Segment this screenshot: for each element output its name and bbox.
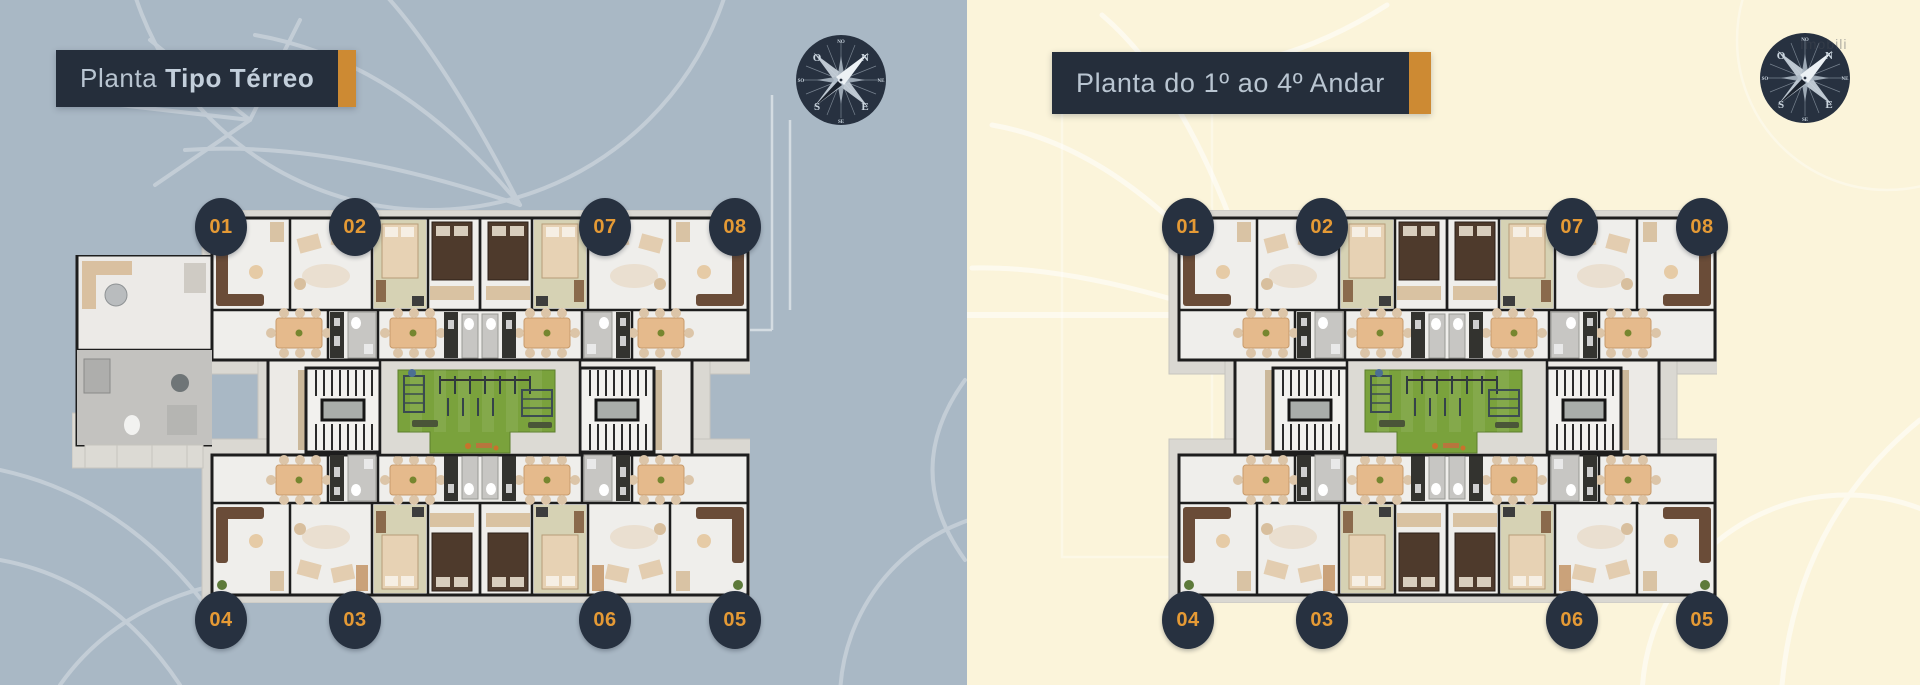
- unit-badge-02: 02: [329, 198, 381, 256]
- title-accent-bar: [338, 50, 356, 107]
- floor-plan-terreo: 01 02 07 08 04 03 06 05: [60, 210, 750, 603]
- compass-o: O: [1777, 50, 1786, 62]
- unit-badge-07: 07: [579, 198, 631, 256]
- compass-e: E: [1825, 99, 1832, 111]
- compass-s: S: [814, 101, 820, 113]
- unit-badge-01: 01: [195, 198, 247, 256]
- service-wing: [72, 255, 212, 470]
- watermark-text: Imobili: [1800, 36, 1847, 52]
- unit-badge-04: 04: [1162, 591, 1214, 649]
- title-terreo: Planta Tipo Térreo: [56, 50, 356, 107]
- compass-e: E: [861, 101, 868, 113]
- panel-andares: Planta do 1º ao 4º Andar Imobili N E S: [967, 0, 1920, 685]
- floor-plan-drawing: [1027, 210, 1717, 603]
- unit-badge-07: 07: [1546, 198, 1598, 256]
- unit-badge-05: 05: [1676, 591, 1728, 649]
- panel-terreo: Planta Tipo Térreo N E S O: [0, 0, 967, 685]
- compass-so: SO: [798, 79, 805, 84]
- title-andares: Planta do 1º ao 4º Andar: [1052, 52, 1431, 114]
- title-accent-bar: [1409, 52, 1431, 114]
- compass-no: NO: [837, 40, 845, 45]
- compass-ne: NE: [878, 79, 886, 84]
- unit-badge-06: 06: [1546, 591, 1598, 649]
- compass-so: SO: [1762, 77, 1769, 82]
- unit-badge-03: 03: [1296, 591, 1348, 649]
- compass-ne: NE: [1842, 77, 1850, 82]
- unit-badge-08: 08: [709, 198, 761, 256]
- unit-badge-05: 05: [709, 591, 761, 649]
- unit-badge-01: 01: [1162, 198, 1214, 256]
- compass-rose: N E S O NO NE SE SO: [794, 33, 888, 127]
- unit-badge-02: 02: [1296, 198, 1348, 256]
- page: Planta Tipo Térreo N E S O: [0, 0, 1920, 685]
- unit-badge-08: 08: [1676, 198, 1728, 256]
- unit-badge-03: 03: [329, 591, 381, 649]
- compass-n: N: [861, 52, 869, 64]
- compass-se: SE: [838, 120, 845, 125]
- floor-plan-andares: 01 02 07 08 04 03 06 05: [1027, 210, 1717, 603]
- title-text: Planta Tipo Térreo: [56, 50, 338, 107]
- title-text: Planta do 1º ao 4º Andar: [1052, 52, 1409, 114]
- compass-se: SE: [1802, 118, 1809, 123]
- unit-badge-06: 06: [579, 591, 631, 649]
- unit-badge-04: 04: [195, 591, 247, 649]
- compass-o: O: [813, 52, 822, 64]
- compass-s: S: [1778, 99, 1784, 111]
